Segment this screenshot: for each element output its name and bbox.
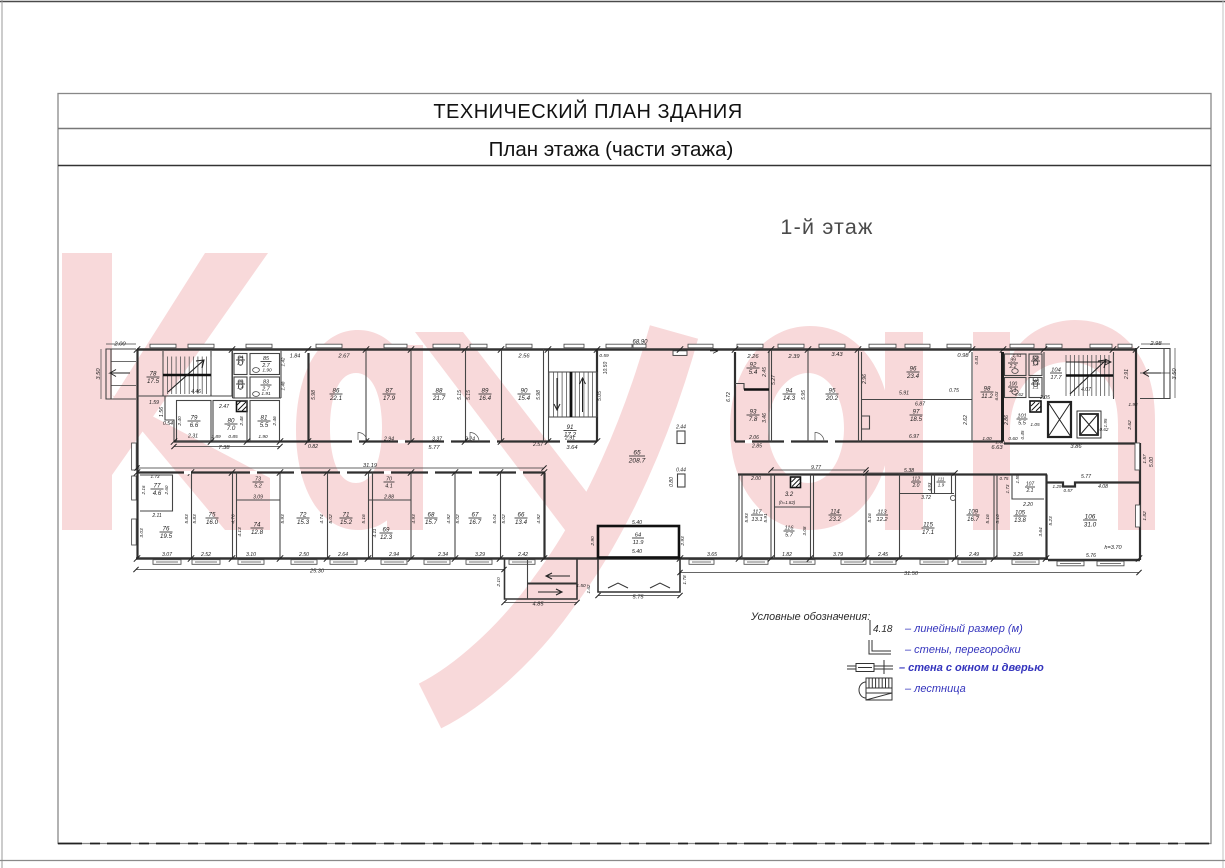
svg-text:1.95: 1.95 xyxy=(1103,418,1108,427)
svg-text:5.83: 5.83 xyxy=(184,514,190,524)
svg-text:0.81: 0.81 xyxy=(974,355,979,364)
svg-text:69: 69 xyxy=(383,526,390,533)
svg-text:115: 115 xyxy=(923,521,933,528)
svg-text:2.64: 2.64 xyxy=(337,552,348,558)
svg-text:15.7: 15.7 xyxy=(425,519,438,526)
svg-text:2.46: 2.46 xyxy=(272,416,278,427)
svg-text:2.50: 2.50 xyxy=(298,552,309,558)
svg-text:98: 98 xyxy=(984,385,991,392)
svg-text:4.18: 4.18 xyxy=(873,624,893,635)
svg-text:1.56: 1.56 xyxy=(159,407,165,417)
svg-text:3.08: 3.08 xyxy=(802,526,807,535)
svg-text:2.31: 2.31 xyxy=(187,434,198,440)
svg-text:86: 86 xyxy=(333,387,340,394)
svg-text:12.8: 12.8 xyxy=(251,529,264,536)
svg-text:1.90: 1.90 xyxy=(262,368,272,374)
svg-text:81: 81 xyxy=(261,414,268,421)
svg-text:2.45: 2.45 xyxy=(762,367,768,378)
svg-text:5.77: 5.77 xyxy=(1081,474,1092,480)
svg-text:2.88: 2.88 xyxy=(383,495,394,501)
svg-text:113: 113 xyxy=(877,509,887,515)
svg-text:97: 97 xyxy=(913,408,920,415)
svg-text:4.92: 4.92 xyxy=(536,514,542,524)
svg-text:1.62: 1.62 xyxy=(586,584,591,593)
svg-text:11.9: 11.9 xyxy=(633,540,645,546)
svg-text:3.2: 3.2 xyxy=(785,492,794,498)
svg-text:5.40: 5.40 xyxy=(632,549,642,555)
svg-text:94: 94 xyxy=(786,387,793,394)
svg-text:5.05: 5.05 xyxy=(597,391,603,401)
svg-text:13.1: 13.1 xyxy=(751,517,762,523)
svg-text:– линейный размер (м): – линейный размер (м) xyxy=(904,623,1023,635)
svg-text:4.74: 4.74 xyxy=(319,514,325,524)
svg-text:5.00: 5.00 xyxy=(1149,457,1155,467)
svg-text:112: 112 xyxy=(912,476,920,482)
svg-text:114: 114 xyxy=(830,509,840,515)
svg-text:6.97: 6.97 xyxy=(909,434,920,440)
svg-text:5.7: 5.7 xyxy=(785,533,794,539)
svg-text:101: 101 xyxy=(1017,413,1026,419)
svg-text:2.45: 2.45 xyxy=(877,552,888,558)
svg-text:2.1: 2.1 xyxy=(1026,488,1034,494)
svg-text:93: 93 xyxy=(750,408,757,415)
svg-text:5.98: 5.98 xyxy=(536,390,542,400)
svg-text:1.92: 1.92 xyxy=(1128,402,1138,408)
svg-text:1.4: 1.4 xyxy=(237,385,244,390)
svg-text:1-й этаж: 1-й этаж xyxy=(780,215,873,239)
svg-text:3.09: 3.09 xyxy=(253,495,263,501)
svg-text:5.15: 5.15 xyxy=(457,390,463,400)
svg-text:1.00: 1.00 xyxy=(982,436,992,442)
svg-text:5.83: 5.83 xyxy=(192,514,198,524)
svg-text:3.50: 3.50 xyxy=(1172,368,1178,380)
svg-text:1.50: 1.50 xyxy=(576,583,586,589)
svg-text:2.39: 2.39 xyxy=(787,354,800,360)
svg-text:1.57: 1.57 xyxy=(1142,454,1148,464)
svg-text:3.86: 3.86 xyxy=(1070,444,1082,450)
svg-text:0.54: 0.54 xyxy=(163,421,173,427)
svg-text:89: 89 xyxy=(482,387,489,394)
svg-text:5.93: 5.93 xyxy=(280,514,286,524)
svg-text:2.96: 2.96 xyxy=(862,374,868,385)
svg-text:– стены, перегородки: – стены, перегородки xyxy=(904,644,1021,656)
svg-text:4.11: 4.11 xyxy=(372,528,378,537)
svg-text:16.0: 16.0 xyxy=(206,519,219,526)
svg-text:19.5: 19.5 xyxy=(160,533,173,540)
svg-text:4.6: 4.6 xyxy=(153,490,162,497)
svg-text:1.59: 1.59 xyxy=(149,400,159,406)
svg-text:1.55: 1.55 xyxy=(1015,474,1020,483)
svg-text:65: 65 xyxy=(633,449,641,456)
svg-text:2.49: 2.49 xyxy=(968,552,979,558)
svg-text:– лестница: – лестница xyxy=(904,683,966,695)
svg-text:78: 78 xyxy=(150,370,157,377)
svg-text:23.4: 23.4 xyxy=(906,373,920,380)
svg-text:0.60: 0.60 xyxy=(1008,436,1018,442)
svg-text:87: 87 xyxy=(386,387,393,394)
svg-text:23.2: 23.2 xyxy=(828,517,841,523)
svg-text:31.50: 31.50 xyxy=(904,571,919,577)
svg-text:16.4: 16.4 xyxy=(479,395,492,402)
svg-text:7.38: 7.38 xyxy=(218,445,230,451)
svg-text:1.84: 1.84 xyxy=(290,354,301,360)
svg-text:22.1: 22.1 xyxy=(329,395,342,402)
svg-text:2.24: 2.24 xyxy=(464,437,475,443)
svg-text:5.95: 5.95 xyxy=(801,390,807,400)
svg-text:6.6: 6.6 xyxy=(190,422,199,429)
svg-text:1.51: 1.51 xyxy=(1013,353,1022,358)
svg-text:1.42: 1.42 xyxy=(281,357,286,366)
svg-text:1.48: 1.48 xyxy=(281,381,286,390)
svg-text:– стена с окном и дверью: – стена с окном и дверью xyxy=(899,662,1044,674)
svg-text:103: 103 xyxy=(1032,378,1040,383)
svg-text:6.72: 6.72 xyxy=(726,392,732,402)
svg-text:0.75: 0.75 xyxy=(1000,476,1009,481)
svg-text:71: 71 xyxy=(343,511,350,518)
svg-text:2.11: 2.11 xyxy=(151,513,162,519)
svg-text:5.16: 5.16 xyxy=(985,514,991,524)
svg-text:67: 67 xyxy=(472,511,479,518)
svg-text:5.27: 5.27 xyxy=(771,375,777,385)
svg-text:2.0: 2.0 xyxy=(912,483,920,489)
svg-text:3.29: 3.29 xyxy=(475,552,485,558)
svg-text:111: 111 xyxy=(938,476,945,481)
svg-text:5.2: 5.2 xyxy=(254,483,262,489)
svg-text:2.7: 2.7 xyxy=(236,361,244,366)
svg-text:17.5: 17.5 xyxy=(147,378,160,385)
svg-text:6.87: 6.87 xyxy=(915,402,926,408)
svg-text:5.93: 5.93 xyxy=(744,513,750,523)
svg-text:92: 92 xyxy=(750,361,757,368)
svg-text:5.04: 5.04 xyxy=(492,514,498,524)
svg-text:1.9: 1.9 xyxy=(938,483,945,488)
svg-text:1.82: 1.82 xyxy=(782,552,792,558)
svg-text:6.63: 6.63 xyxy=(991,445,1003,451)
svg-text:7.0: 7.0 xyxy=(227,425,236,432)
svg-text:Условные обозначения:: Условные обозначения: xyxy=(750,611,870,623)
svg-text:70: 70 xyxy=(386,476,392,482)
svg-text:0.44: 0.44 xyxy=(676,468,686,474)
svg-text:208.7: 208.7 xyxy=(628,458,646,465)
svg-text:109: 109 xyxy=(968,509,979,515)
svg-text:5.02: 5.02 xyxy=(501,514,507,524)
svg-text:1.73: 1.73 xyxy=(1005,484,1010,493)
svg-text:4.92: 4.92 xyxy=(446,514,452,524)
svg-text:5.5: 5.5 xyxy=(1018,421,1027,427)
svg-text:h=3.70: h=3.70 xyxy=(1104,545,1122,551)
svg-text:2.85: 2.85 xyxy=(751,444,762,450)
svg-text:2.34: 2.34 xyxy=(437,552,448,558)
svg-text:4.46: 4.46 xyxy=(191,389,201,395)
svg-text:2.47: 2.47 xyxy=(218,404,230,410)
svg-text:105: 105 xyxy=(1015,510,1026,516)
svg-text:2.00: 2.00 xyxy=(750,476,761,482)
svg-text:4.13: 4.13 xyxy=(237,527,243,537)
svg-text:66: 66 xyxy=(518,511,525,518)
svg-text:17.7: 17.7 xyxy=(1050,375,1062,381)
svg-text:5.76: 5.76 xyxy=(1086,553,1096,559)
svg-text:0.80: 0.80 xyxy=(669,477,675,487)
svg-text:64: 64 xyxy=(635,532,641,538)
svg-text:116: 116 xyxy=(785,525,795,531)
svg-text:0.59: 0.59 xyxy=(599,353,609,359)
svg-text:3.37: 3.37 xyxy=(432,437,443,443)
svg-text:31.0: 31.0 xyxy=(1084,521,1097,528)
svg-text:100: 100 xyxy=(1009,381,1018,387)
svg-text:15.3: 15.3 xyxy=(297,519,310,526)
svg-text:102: 102 xyxy=(1032,355,1040,360)
svg-text:16.7: 16.7 xyxy=(469,519,482,526)
svg-text:1.82: 1.82 xyxy=(1142,511,1148,521)
svg-text:2.62: 2.62 xyxy=(1127,420,1133,431)
svg-text:107: 107 xyxy=(1026,481,1035,487)
svg-text:15.4: 15.4 xyxy=(518,395,531,402)
svg-text:3.65: 3.65 xyxy=(707,552,717,558)
svg-text:3.46: 3.46 xyxy=(762,413,768,423)
svg-text:2.42: 2.42 xyxy=(517,552,528,558)
svg-text:5.5: 5.5 xyxy=(260,422,269,429)
svg-text:2.56: 2.56 xyxy=(517,354,530,360)
svg-text:79: 79 xyxy=(191,414,198,421)
svg-text:1.05: 1.05 xyxy=(1030,422,1040,428)
svg-text:2.10: 2.10 xyxy=(496,577,502,588)
svg-text:72: 72 xyxy=(300,511,307,518)
svg-text:2.40: 2.40 xyxy=(177,416,183,427)
svg-text:1.4: 1.4 xyxy=(1032,361,1039,366)
svg-text:95: 95 xyxy=(829,387,836,394)
svg-text:106: 106 xyxy=(1085,513,1096,520)
svg-text:2.98: 2.98 xyxy=(1149,341,1162,347)
svg-text:2.20: 2.20 xyxy=(1022,502,1033,508)
svg-text:13.8: 13.8 xyxy=(1014,518,1026,524)
svg-text:0.85: 0.85 xyxy=(228,434,238,440)
svg-text:74: 74 xyxy=(254,521,261,528)
svg-text:83: 83 xyxy=(263,379,269,385)
svg-text:4.93: 4.93 xyxy=(927,482,932,491)
svg-text:1.73: 1.73 xyxy=(151,474,160,479)
svg-text:2.94: 2.94 xyxy=(383,437,394,443)
svg-text:5.16: 5.16 xyxy=(867,513,873,523)
svg-text:0.75: 0.75 xyxy=(949,388,959,394)
svg-text:4.1: 4.1 xyxy=(385,483,393,489)
svg-text:3.03: 3.03 xyxy=(139,528,145,538)
svg-text:2.62: 2.62 xyxy=(963,415,969,426)
svg-text:10.50: 10.50 xyxy=(603,362,609,375)
svg-text:2.16: 2.16 xyxy=(141,485,146,495)
svg-text:73: 73 xyxy=(255,476,261,482)
svg-text:(h=1.82): (h=1.82) xyxy=(779,500,796,505)
svg-text:4.93: 4.93 xyxy=(411,514,417,524)
svg-text:0.45: 0.45 xyxy=(1020,430,1025,439)
svg-text:14.3: 14.3 xyxy=(783,395,796,402)
svg-text:18.5: 18.5 xyxy=(910,416,923,423)
svg-text:15.2: 15.2 xyxy=(340,519,353,526)
svg-text:77: 77 xyxy=(154,482,161,489)
svg-text:1.29: 1.29 xyxy=(1053,484,1062,489)
svg-text:3.50: 3.50 xyxy=(96,368,102,380)
svg-text:88: 88 xyxy=(436,387,443,394)
svg-text:20.2: 20.2 xyxy=(825,395,839,402)
svg-text:2.91: 2.91 xyxy=(1124,369,1130,380)
svg-text:ТЕХНИЧЕСКИЙ ПЛАН ЗДАНИЯ: ТЕХНИЧЕСКИЙ ПЛАН ЗДАНИЯ xyxy=(433,99,742,123)
svg-text:3.07: 3.07 xyxy=(162,552,173,558)
svg-text:3.43: 3.43 xyxy=(831,352,843,358)
svg-text:5.77: 5.77 xyxy=(428,445,440,451)
svg-text:4.08: 4.08 xyxy=(1098,484,1108,490)
svg-text:5.02: 5.02 xyxy=(455,514,461,524)
svg-text:104: 104 xyxy=(1051,367,1061,373)
svg-text:3.25: 3.25 xyxy=(1013,552,1023,558)
svg-text:12.2: 12.2 xyxy=(876,517,888,523)
svg-text:1.91: 1.91 xyxy=(261,391,271,397)
svg-text:17.9: 17.9 xyxy=(383,395,396,402)
svg-text:План этажа (части этажа): План этажа (части этажа) xyxy=(489,138,734,161)
svg-text:2.93: 2.93 xyxy=(680,536,686,547)
svg-text:5.40: 5.40 xyxy=(632,520,642,526)
svg-text:2.52: 2.52 xyxy=(200,552,211,558)
svg-text:2.00: 2.00 xyxy=(113,342,126,348)
svg-text:12.3: 12.3 xyxy=(380,534,393,541)
svg-text:75: 75 xyxy=(209,511,216,518)
svg-text:80: 80 xyxy=(228,417,235,424)
svg-text:6.03: 6.03 xyxy=(994,391,999,400)
svg-text:2.67: 2.67 xyxy=(337,354,350,360)
svg-text:2.90: 2.90 xyxy=(590,536,596,547)
svg-text:84: 84 xyxy=(238,354,244,359)
svg-text:3.10: 3.10 xyxy=(246,552,256,558)
svg-text:2.94: 2.94 xyxy=(388,552,399,558)
svg-text:5.02: 5.02 xyxy=(328,514,334,524)
svg-text:3.64: 3.64 xyxy=(566,445,577,451)
svg-text:2.05: 2.05 xyxy=(1039,395,1050,401)
svg-text:4.76: 4.76 xyxy=(231,514,237,524)
svg-text:5.4: 5.4 xyxy=(749,369,758,376)
svg-text:3.72: 3.72 xyxy=(921,495,931,501)
svg-text:5.23: 5.23 xyxy=(1048,516,1054,526)
svg-text:0.98: 0.98 xyxy=(957,353,969,359)
svg-text:5.91: 5.91 xyxy=(763,513,769,523)
svg-text:99: 99 xyxy=(1010,357,1016,363)
svg-text:17.1: 17.1 xyxy=(922,529,934,536)
svg-text:11.2: 11.2 xyxy=(981,393,993,400)
svg-text:7.8: 7.8 xyxy=(749,416,758,423)
svg-text:13.4: 13.4 xyxy=(515,519,528,526)
svg-text:1.62: 1.62 xyxy=(1015,392,1024,397)
svg-text:0.82: 0.82 xyxy=(308,444,318,450)
svg-text:1.1: 1.1 xyxy=(1032,384,1039,389)
svg-text:85: 85 xyxy=(263,356,270,362)
svg-text:91: 91 xyxy=(567,424,574,431)
svg-text:3.64: 3.64 xyxy=(1038,527,1044,537)
svg-text:5.91: 5.91 xyxy=(899,391,909,397)
svg-text:2.44: 2.44 xyxy=(675,425,686,431)
svg-text:2.86: 2.86 xyxy=(1004,415,1010,426)
svg-text:5.16: 5.16 xyxy=(361,514,367,524)
svg-text:90: 90 xyxy=(521,387,528,394)
svg-text:68: 68 xyxy=(428,511,435,518)
svg-text:2.2: 2.2 xyxy=(1009,364,1017,370)
svg-text:5.15: 5.15 xyxy=(466,390,472,400)
svg-text:96: 96 xyxy=(910,365,917,372)
svg-text:1.78: 1.78 xyxy=(682,575,688,585)
svg-text:21.7: 21.7 xyxy=(432,395,446,402)
svg-text:4.07: 4.07 xyxy=(1081,387,1091,393)
svg-text:2.48: 2.48 xyxy=(239,416,245,427)
svg-text:5.16: 5.16 xyxy=(995,514,1001,524)
svg-text:16.7: 16.7 xyxy=(967,517,979,523)
svg-text:0.57: 0.57 xyxy=(1064,488,1073,493)
svg-text:5.98: 5.98 xyxy=(311,390,317,400)
svg-text:3.79: 3.79 xyxy=(833,552,843,558)
svg-text:2.26: 2.26 xyxy=(746,354,759,360)
svg-text:82: 82 xyxy=(238,378,244,383)
svg-text:2.57: 2.57 xyxy=(532,442,544,448)
svg-text:2.60: 2.60 xyxy=(164,485,169,495)
svg-text:76: 76 xyxy=(163,525,170,532)
svg-text:1.90: 1.90 xyxy=(258,434,268,440)
svg-text:117: 117 xyxy=(752,509,762,515)
